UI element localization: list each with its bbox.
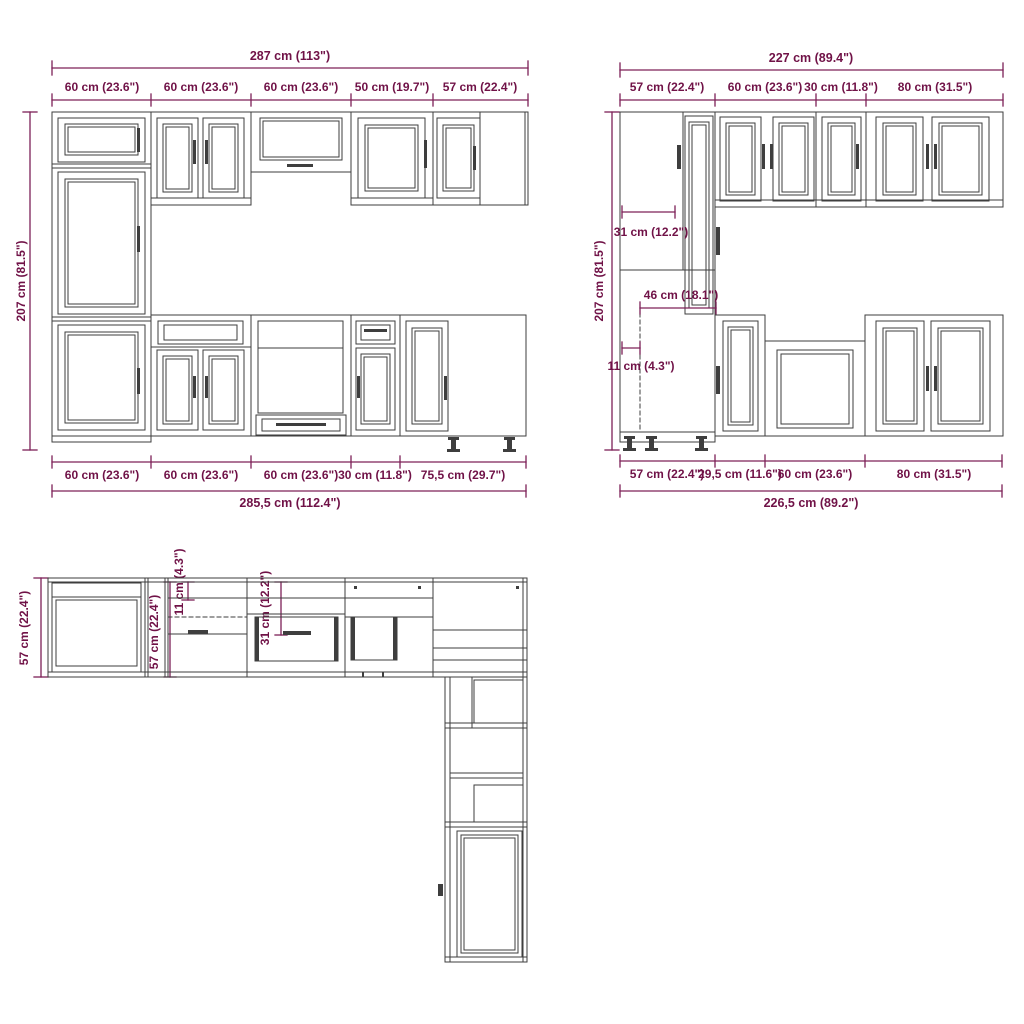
fvm-dim-segments-top: 60 cm (23.6") 60 cm (23.6") 60 cm (23.6"… — [52, 80, 528, 106]
dim-total-width-bottom-label: 285,5 cm (112.4") — [239, 496, 340, 510]
dim-height-label: 207 cm (81.5") — [14, 240, 28, 321]
door-handle — [934, 366, 937, 391]
dim-seg-label: 75,5 cm (29.7") — [421, 468, 505, 482]
adjustable-foot — [447, 437, 460, 452]
door-handle — [357, 376, 360, 398]
drawer-handle — [276, 423, 326, 426]
fvm-feet — [447, 437, 516, 452]
dim-toe-kick-label: 11 cm (4.3") — [607, 359, 674, 373]
technical-drawing-page: 287 cm (113") 60 cm (23.6") 60 cm (23.6"… — [0, 0, 1024, 1024]
fvs-tall-cabinet — [620, 112, 720, 451]
door-handle — [137, 368, 140, 394]
dim-left-depth-label: 57 cm (22.4") — [17, 591, 31, 665]
dim-seg-label: 57 cm (22.4") — [630, 467, 704, 481]
door-handle — [762, 144, 765, 169]
door-handle — [926, 144, 929, 169]
fvm-wall-cabinet-50 — [351, 112, 433, 205]
flip-door-handle — [287, 164, 313, 167]
door-handle — [137, 226, 140, 252]
fvs-wall-cabinet-80 — [866, 112, 1003, 207]
fvm-wall-cabinet-2door — [151, 112, 251, 205]
plan-vertical-run — [438, 578, 527, 962]
adjustable-foot — [503, 437, 516, 452]
door-handle — [205, 376, 208, 398]
fvm-dim-overall-top: 287 cm (113") — [52, 49, 528, 75]
cabinet-drawing-svg: 287 cm (113") 60 cm (23.6") 60 cm (23.6"… — [0, 0, 1024, 1024]
fvm-dim-overall-bottom: 285,5 cm (112.4") — [52, 485, 526, 510]
door-handle — [677, 145, 681, 169]
door-handle — [473, 146, 476, 170]
dim-seg-label: 50 cm (19.7") — [355, 80, 429, 94]
door-handle — [856, 144, 859, 169]
fvs-base-cabinet-80 — [865, 315, 1003, 436]
door-handle — [444, 376, 447, 400]
dim-seg-label: 60 cm (23.6") — [728, 80, 802, 94]
dim-seg-label: 60 cm (23.6") — [164, 80, 238, 94]
dim-seg-label: 60 cm (23.6") — [65, 468, 139, 482]
dim-total-width-bottom-label: 226,5 cm (89.2") — [764, 496, 859, 510]
plan-tall-door — [438, 831, 522, 957]
plan-cabinet-1 — [52, 583, 141, 672]
dim-seg-label: 60 cm (23.6") — [264, 468, 338, 482]
plan-view: 57 cm (22.4") 57 cm (22.4") 11 cm (4.3")… — [17, 548, 527, 962]
door-handle — [770, 144, 773, 169]
fvs-dim-segments-top: 57 cm (22.4") 60 cm (23.6") 30 cm (11.8"… — [620, 80, 1003, 106]
fvm-dim-height: 207 cm (81.5") — [14, 112, 37, 450]
fvm-tall-cabinet — [52, 112, 151, 442]
adjustable-foot — [645, 436, 658, 451]
fvs-sink-cabinet-60 — [765, 341, 865, 436]
fvm-wall-cabinet-57 — [433, 112, 528, 205]
door-handle — [716, 366, 720, 394]
fvm-base-cabinet-drawer-2door — [151, 315, 251, 436]
dim-seg-label: 29,5 cm (11.6") — [698, 467, 782, 481]
drawer-handle — [364, 329, 387, 332]
door-handle — [193, 140, 196, 164]
door-handle — [926, 366, 929, 391]
door-handle — [193, 376, 196, 398]
fvm-base-cabinet-30 — [351, 315, 400, 436]
dim-seg-label: 57 cm (22.4") — [630, 80, 704, 94]
dim-seg-label: 60 cm (23.6") — [778, 467, 852, 481]
fvs-dim-toe-kick: 11 cm (4.3") — [607, 342, 674, 373]
dim-total-width-top-label: 227 cm (89.4") — [769, 51, 853, 65]
fvs-dim-height: 207 cm (81.5") — [592, 112, 619, 450]
handle-mark — [188, 630, 208, 634]
dim-seg-label: 30 cm (11.8") — [338, 468, 412, 482]
fvm-oven-cabinet — [251, 315, 351, 436]
dim-seg-label: 57 cm (22.4") — [443, 80, 517, 94]
dim-seg-label: 60 cm (23.6") — [164, 468, 238, 482]
dim-seg-label: 60 cm (23.6") — [264, 80, 338, 94]
fvs-wall-cabinet-30 — [816, 112, 866, 207]
fvs-dim-wall-depth: 31 cm (12.2") — [614, 206, 688, 239]
dim-height-label: 207 cm (81.5") — [592, 240, 606, 321]
fvs-wall-cabinet-60 — [715, 112, 816, 207]
dim-seg-label: 80 cm (31.5") — [898, 80, 972, 94]
adjustable-foot — [623, 436, 636, 451]
adjustable-foot — [695, 436, 708, 451]
front-view-main: 287 cm (113") 60 cm (23.6") 60 cm (23.6"… — [14, 49, 528, 510]
fvs-base-cabinet-29 — [715, 315, 765, 436]
door-handle — [424, 140, 427, 168]
plan-cabinet-4 — [345, 578, 433, 677]
dim-run-depth-label: 57 cm (22.4") — [147, 595, 161, 669]
fvm-base-corner-cabinet — [400, 315, 526, 436]
handle-mark — [283, 631, 311, 635]
plan-corner-cabinet — [354, 578, 527, 677]
dim-seg-label: 30 cm (11.8") — [804, 80, 878, 94]
side-handle — [716, 227, 720, 255]
fvs-dim-overall-bottom: 226,5 cm (89.2") — [620, 485, 1002, 510]
plan-top-run — [48, 578, 527, 677]
front-view-side: 227 cm (89.4") 57 cm (22.4") 60 cm (23.6… — [592, 51, 1003, 510]
fvs-dim-base-depth: 46 cm (18.1") — [640, 288, 718, 314]
fvm-dim-segments-bottom: 60 cm (23.6") 60 cm (23.6") 60 cm (23.6"… — [52, 456, 526, 482]
fvs-dim-overall-top: 227 cm (89.4") — [620, 51, 1003, 77]
dim-seg-label: 60 cm (23.6") — [65, 80, 139, 94]
dim-seg-label: 80 cm (31.5") — [897, 467, 971, 481]
dim-wall-depth-label: 31 cm (12.2") — [614, 225, 688, 239]
dim-total-width-top-label: 287 cm (113") — [250, 49, 330, 63]
fvm-wall-cabinet-flip — [251, 112, 351, 172]
door-handle — [137, 128, 140, 152]
dim-base-depth-label: 46 cm (18.1") — [644, 288, 718, 302]
door-handle — [934, 144, 937, 169]
fvs-dim-segments-bottom: 57 cm (22.4") 29,5 cm (11.6") 60 cm (23.… — [620, 455, 1002, 481]
plan-dim-left-depth: 57 cm (22.4") — [17, 578, 48, 677]
door-handle — [438, 884, 443, 896]
door-handle — [205, 140, 208, 164]
